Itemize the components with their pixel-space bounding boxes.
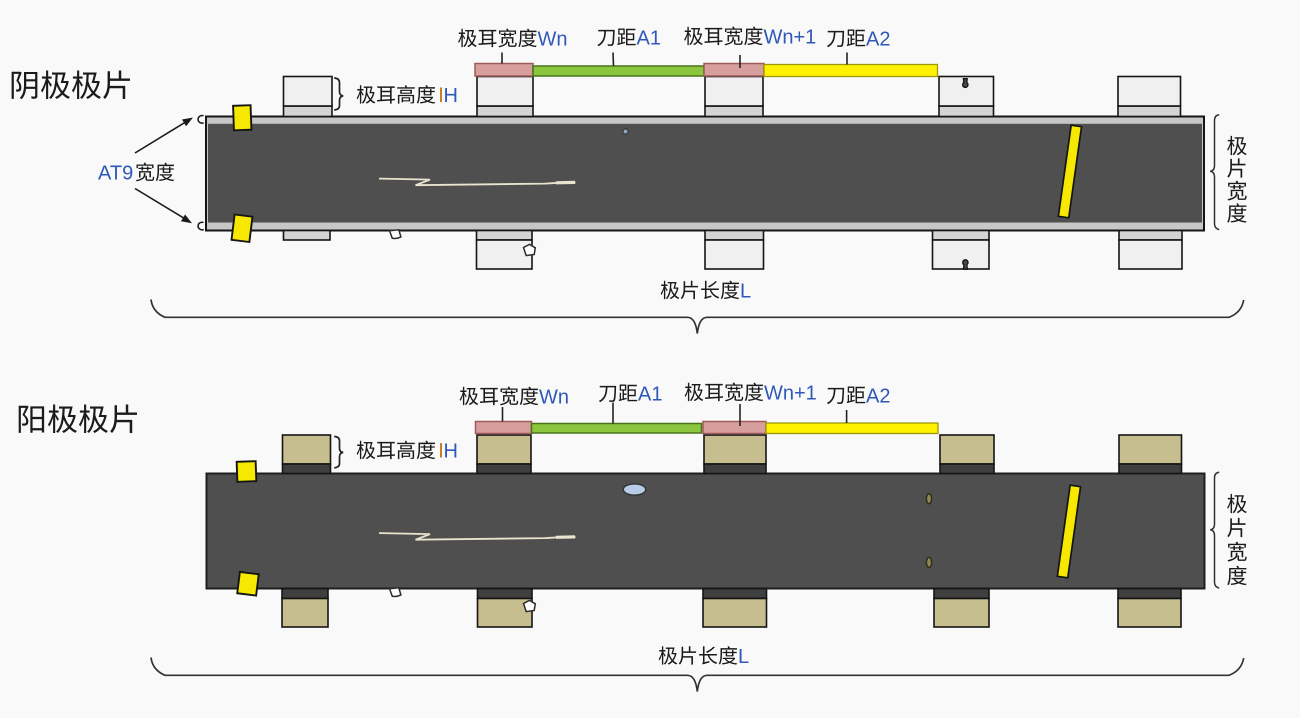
svg-text:H: H — [444, 85, 458, 107]
svg-text:Wn: Wn — [539, 387, 569, 409]
svg-text:Wn+1: Wn+1 — [764, 27, 817, 49]
svg-text:A1: A1 — [638, 384, 662, 406]
svg-text:A2: A2 — [866, 386, 890, 408]
svg-text:AT9: AT9 — [98, 163, 133, 185]
svg-text:H: H — [444, 441, 458, 463]
svg-text:L: L — [740, 281, 751, 303]
svg-text:Wn: Wn — [538, 29, 568, 51]
svg-text:A1: A1 — [637, 28, 661, 50]
svg-text:A2: A2 — [866, 29, 890, 51]
svg-text:L: L — [738, 646, 749, 668]
svg-text:Wn+1: Wn+1 — [764, 383, 817, 405]
